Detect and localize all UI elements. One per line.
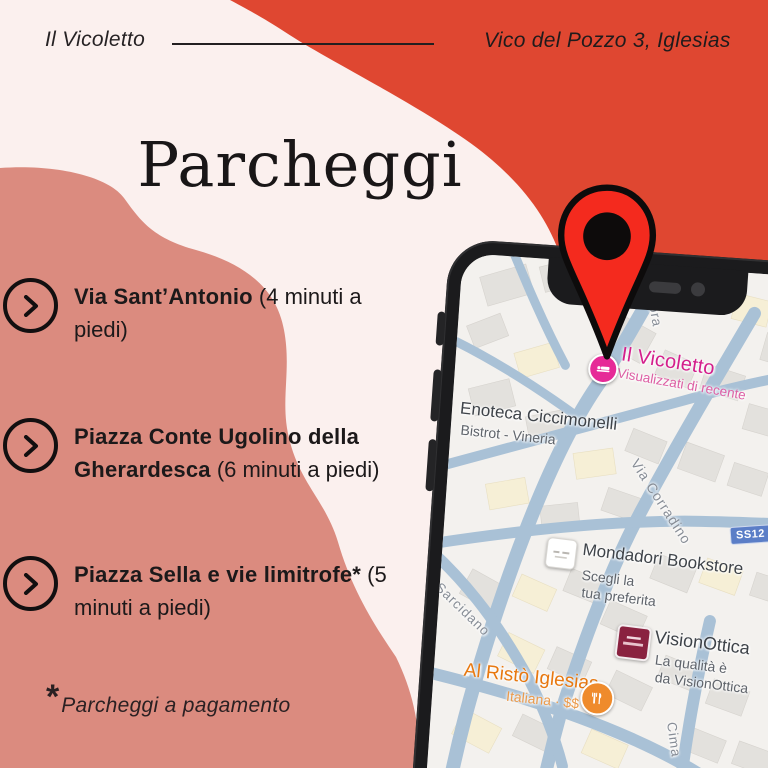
front-camera xyxy=(691,282,706,297)
footnote-text: Parcheggi a pagamento xyxy=(61,694,290,718)
fork-knife-icon xyxy=(590,691,605,706)
power-button xyxy=(435,311,445,345)
volume-up-button xyxy=(430,369,442,421)
route-badge: SS12 xyxy=(729,524,768,545)
item-name: Via Sant’Antonio xyxy=(74,284,253,309)
mondadori-ad-icon xyxy=(545,537,578,570)
chevron-right-icon xyxy=(21,573,41,595)
list-item: Via Sant’Antonio (4 minuti a piedi) xyxy=(3,278,403,346)
brand-name: Il Vicoletto xyxy=(45,28,145,52)
chevron-circle-icon xyxy=(3,418,58,473)
footnote: * Parcheggi a pagamento xyxy=(46,682,291,718)
chevron-circle-icon xyxy=(3,278,58,333)
address-text: Vico del Pozzo 3, Iglesias xyxy=(484,29,731,53)
item-text: Piazza Conte Ugolino della Gherardesca (… xyxy=(74,418,434,486)
footnote-asterisk: * xyxy=(46,682,59,712)
item-name: Piazza Sella e vie limitrofe* xyxy=(74,562,361,587)
header-divider xyxy=(172,43,434,45)
map-pin-icon xyxy=(552,177,662,367)
item-text: Via Sant’Antonio (4 minuti a piedi) xyxy=(74,278,399,346)
flyer-canvas: Il Vicoletto Vico del Pozzo 3, Iglesias … xyxy=(0,0,768,768)
visionottica-logo-icon xyxy=(616,626,649,659)
item-detail: (6 minuti a piedi) xyxy=(211,457,380,482)
chevron-circle-icon xyxy=(3,556,58,611)
item-text: Piazza Sella e vie limitrofe* (5 minuti … xyxy=(74,556,419,624)
chevron-right-icon xyxy=(21,295,41,317)
chevron-right-icon xyxy=(21,435,41,457)
page-title: Parcheggi xyxy=(110,128,490,201)
mondadori-logo-icon xyxy=(546,538,577,569)
list-item: Piazza Conte Ugolino della Gherardesca (… xyxy=(3,418,443,486)
visionottica-ad-icon xyxy=(614,624,652,662)
list-item: Piazza Sella e vie limitrofe* (5 minuti … xyxy=(3,556,423,624)
